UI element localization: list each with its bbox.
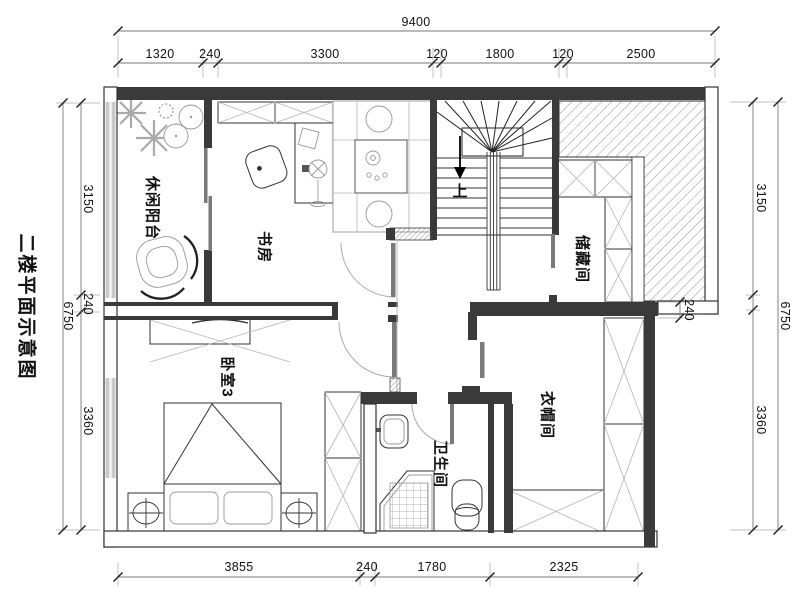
closet-door-leaf (480, 342, 485, 378)
room-label-bathroom: 卫生间 (432, 440, 450, 488)
dim-left-seg-1: 240 (81, 293, 95, 315)
dim-top-seg-4: 1800 (485, 47, 514, 61)
dim-left-total: 6750 (61, 301, 75, 330)
dim-wall-thickness: 240 (682, 299, 696, 321)
room-label-study: 书房 (256, 231, 274, 263)
dim-bottom-seg-3: 2325 (549, 560, 578, 574)
room-label-storage: 储藏间 (574, 235, 592, 283)
dim-right-seg-0: 3150 (754, 183, 768, 212)
floorplan-page: 上 (0, 0, 800, 600)
storage-door-leaf (551, 234, 555, 268)
dim-top-seg-2: 3300 (310, 47, 339, 61)
dim-top-seg-0: 1320 (145, 47, 174, 61)
dim-top-seg-6: 2500 (626, 47, 655, 61)
dim-top-seg-1: 240 (199, 47, 221, 61)
dim-top-total: 9400 (401, 15, 430, 29)
room-label-balcony: 休闲阳台 (144, 175, 162, 240)
dim-bottom-seg-1: 240 (356, 560, 378, 574)
dim-bottom-seg-2: 1780 (417, 560, 446, 574)
floorplan-drawing: 上 (0, 0, 800, 600)
stairs-up-label: 上 (452, 183, 467, 200)
dim-top-seg-3: 120 (426, 47, 448, 61)
dim-bottom-seg-0: 3855 (224, 560, 253, 574)
page-title: 二楼平面示意图 (16, 233, 39, 380)
dim-right-total: 6750 (778, 301, 792, 330)
dim-top-seg-5: 120 (552, 47, 574, 61)
room-label-bedroom: 卧室3 (219, 356, 237, 397)
balcony-sliding-door (204, 148, 208, 203)
dim-left-seg-0: 3150 (81, 184, 95, 213)
wall-jamb-hatch (390, 228, 433, 240)
room-label-closet: 衣帽间 (539, 391, 557, 439)
study-tatami-area (333, 101, 433, 232)
dim-right-seg-1: 3360 (754, 405, 768, 434)
dim-left-seg-2: 3360 (81, 406, 95, 435)
